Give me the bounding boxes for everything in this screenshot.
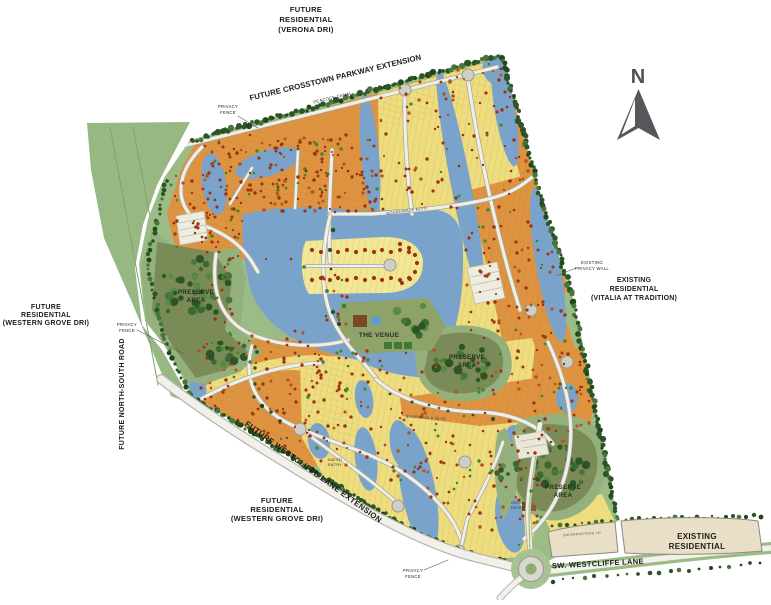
svg-text:GATED: GATED	[328, 458, 342, 462]
svg-text:RESIDENTIAL: RESIDENTIAL	[21, 312, 71, 319]
svg-text:AREA: AREA	[187, 297, 206, 304]
svg-text:ENTRY: ENTRY	[328, 463, 342, 467]
svg-text:PRIVACY: PRIVACY	[403, 568, 423, 573]
svg-text:FUTURE NORTH-SOUTH ROAD: FUTURE NORTH-SOUTH ROAD	[119, 338, 126, 450]
svg-text:AREA: AREA	[554, 492, 573, 499]
svg-text:PRESERVE: PRESERVE	[178, 289, 214, 296]
svg-text:FENCE: FENCE	[220, 110, 236, 115]
svg-text:PRESERVE: PRESERVE	[449, 354, 485, 361]
svg-text:FUTURE: FUTURE	[31, 304, 61, 311]
svg-text:EXISTING: EXISTING	[677, 532, 717, 541]
svg-text:EXISTING: EXISTING	[581, 260, 603, 265]
svg-text:(VERONA DRI): (VERONA DRI)	[278, 25, 334, 34]
svg-text:FUTURE: FUTURE	[290, 5, 322, 14]
svg-text:AREA: AREA	[458, 362, 477, 369]
svg-text:(WESTERN GROVE DRI): (WESTERN GROVE DRI)	[3, 320, 90, 327]
svg-text:(VITALIA AT TRADITION): (VITALIA AT TRADITION)	[591, 295, 677, 302]
svg-text:PRIVACY WALL: PRIVACY WALL	[575, 266, 609, 271]
svg-text:PRIVACY: PRIVACY	[218, 104, 238, 109]
svg-text:THE VENUE: THE VENUE	[359, 332, 400, 339]
svg-text:RESIDENTIAL: RESIDENTIAL	[669, 542, 726, 551]
svg-text:RESIDENTIAL: RESIDENTIAL	[250, 505, 303, 514]
svg-text:PRESERVE: PRESERVE	[545, 484, 581, 491]
svg-text:FENCE: FENCE	[405, 574, 421, 579]
svg-text:N: N	[631, 66, 645, 88]
svg-text:GATED: GATED	[511, 501, 525, 505]
svg-text:FENCE: FENCE	[119, 328, 135, 333]
svg-text:PRIVACY: PRIVACY	[117, 322, 137, 327]
svg-text:FUTURE: FUTURE	[261, 496, 293, 505]
svg-text:ENTRY: ENTRY	[511, 506, 525, 510]
svg-text:(WESTERN GROVE DRI): (WESTERN GROVE DRI)	[231, 514, 324, 523]
svg-text:RESIDENTIAL: RESIDENTIAL	[279, 15, 332, 24]
svg-text:EXISTING: EXISTING	[617, 277, 652, 284]
svg-text:RESIDENTIAL: RESIDENTIAL	[610, 286, 659, 293]
